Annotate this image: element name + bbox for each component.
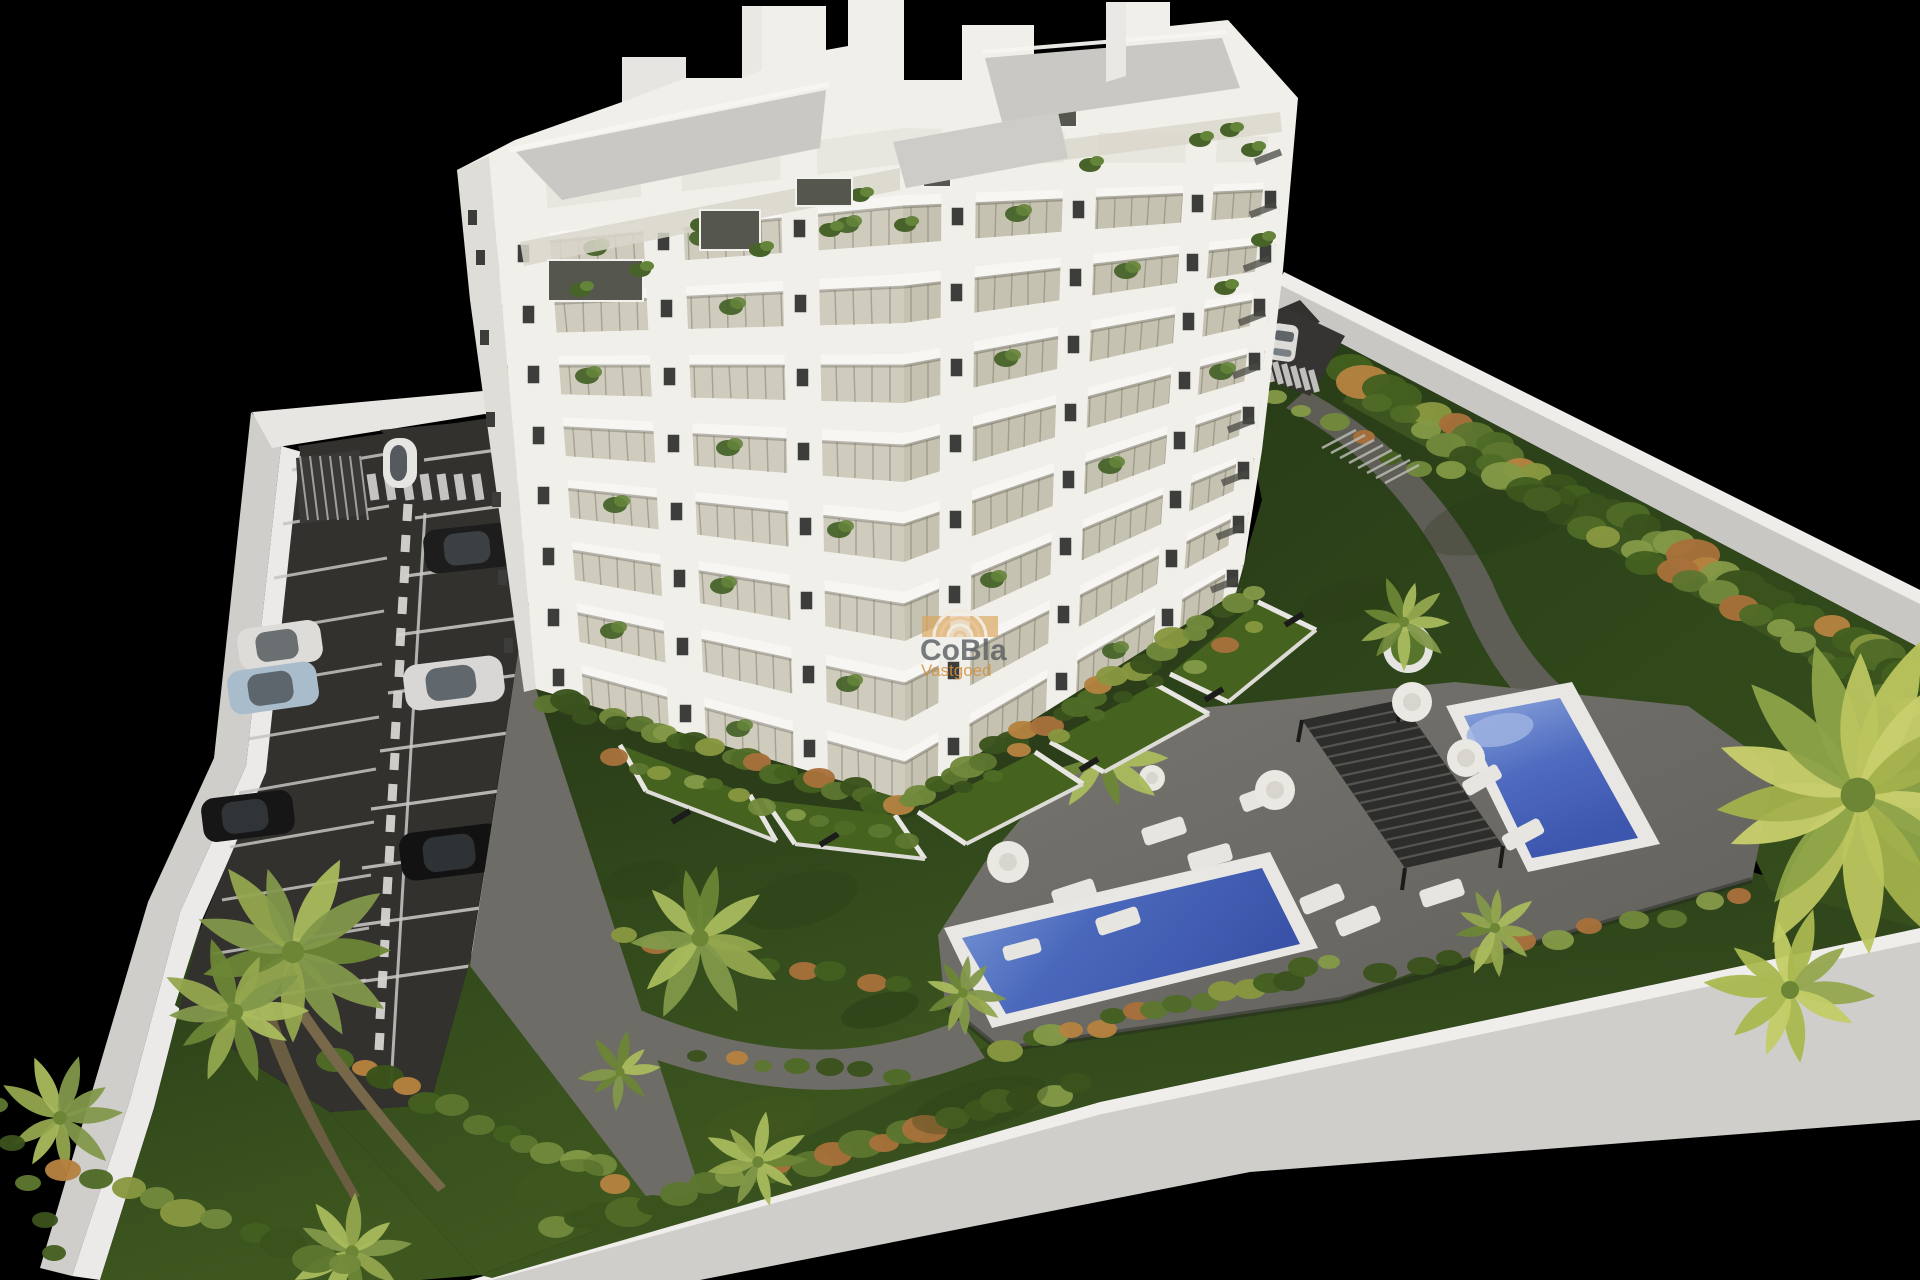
svg-text:Vastgoed: Vastgoed <box>921 661 992 680</box>
